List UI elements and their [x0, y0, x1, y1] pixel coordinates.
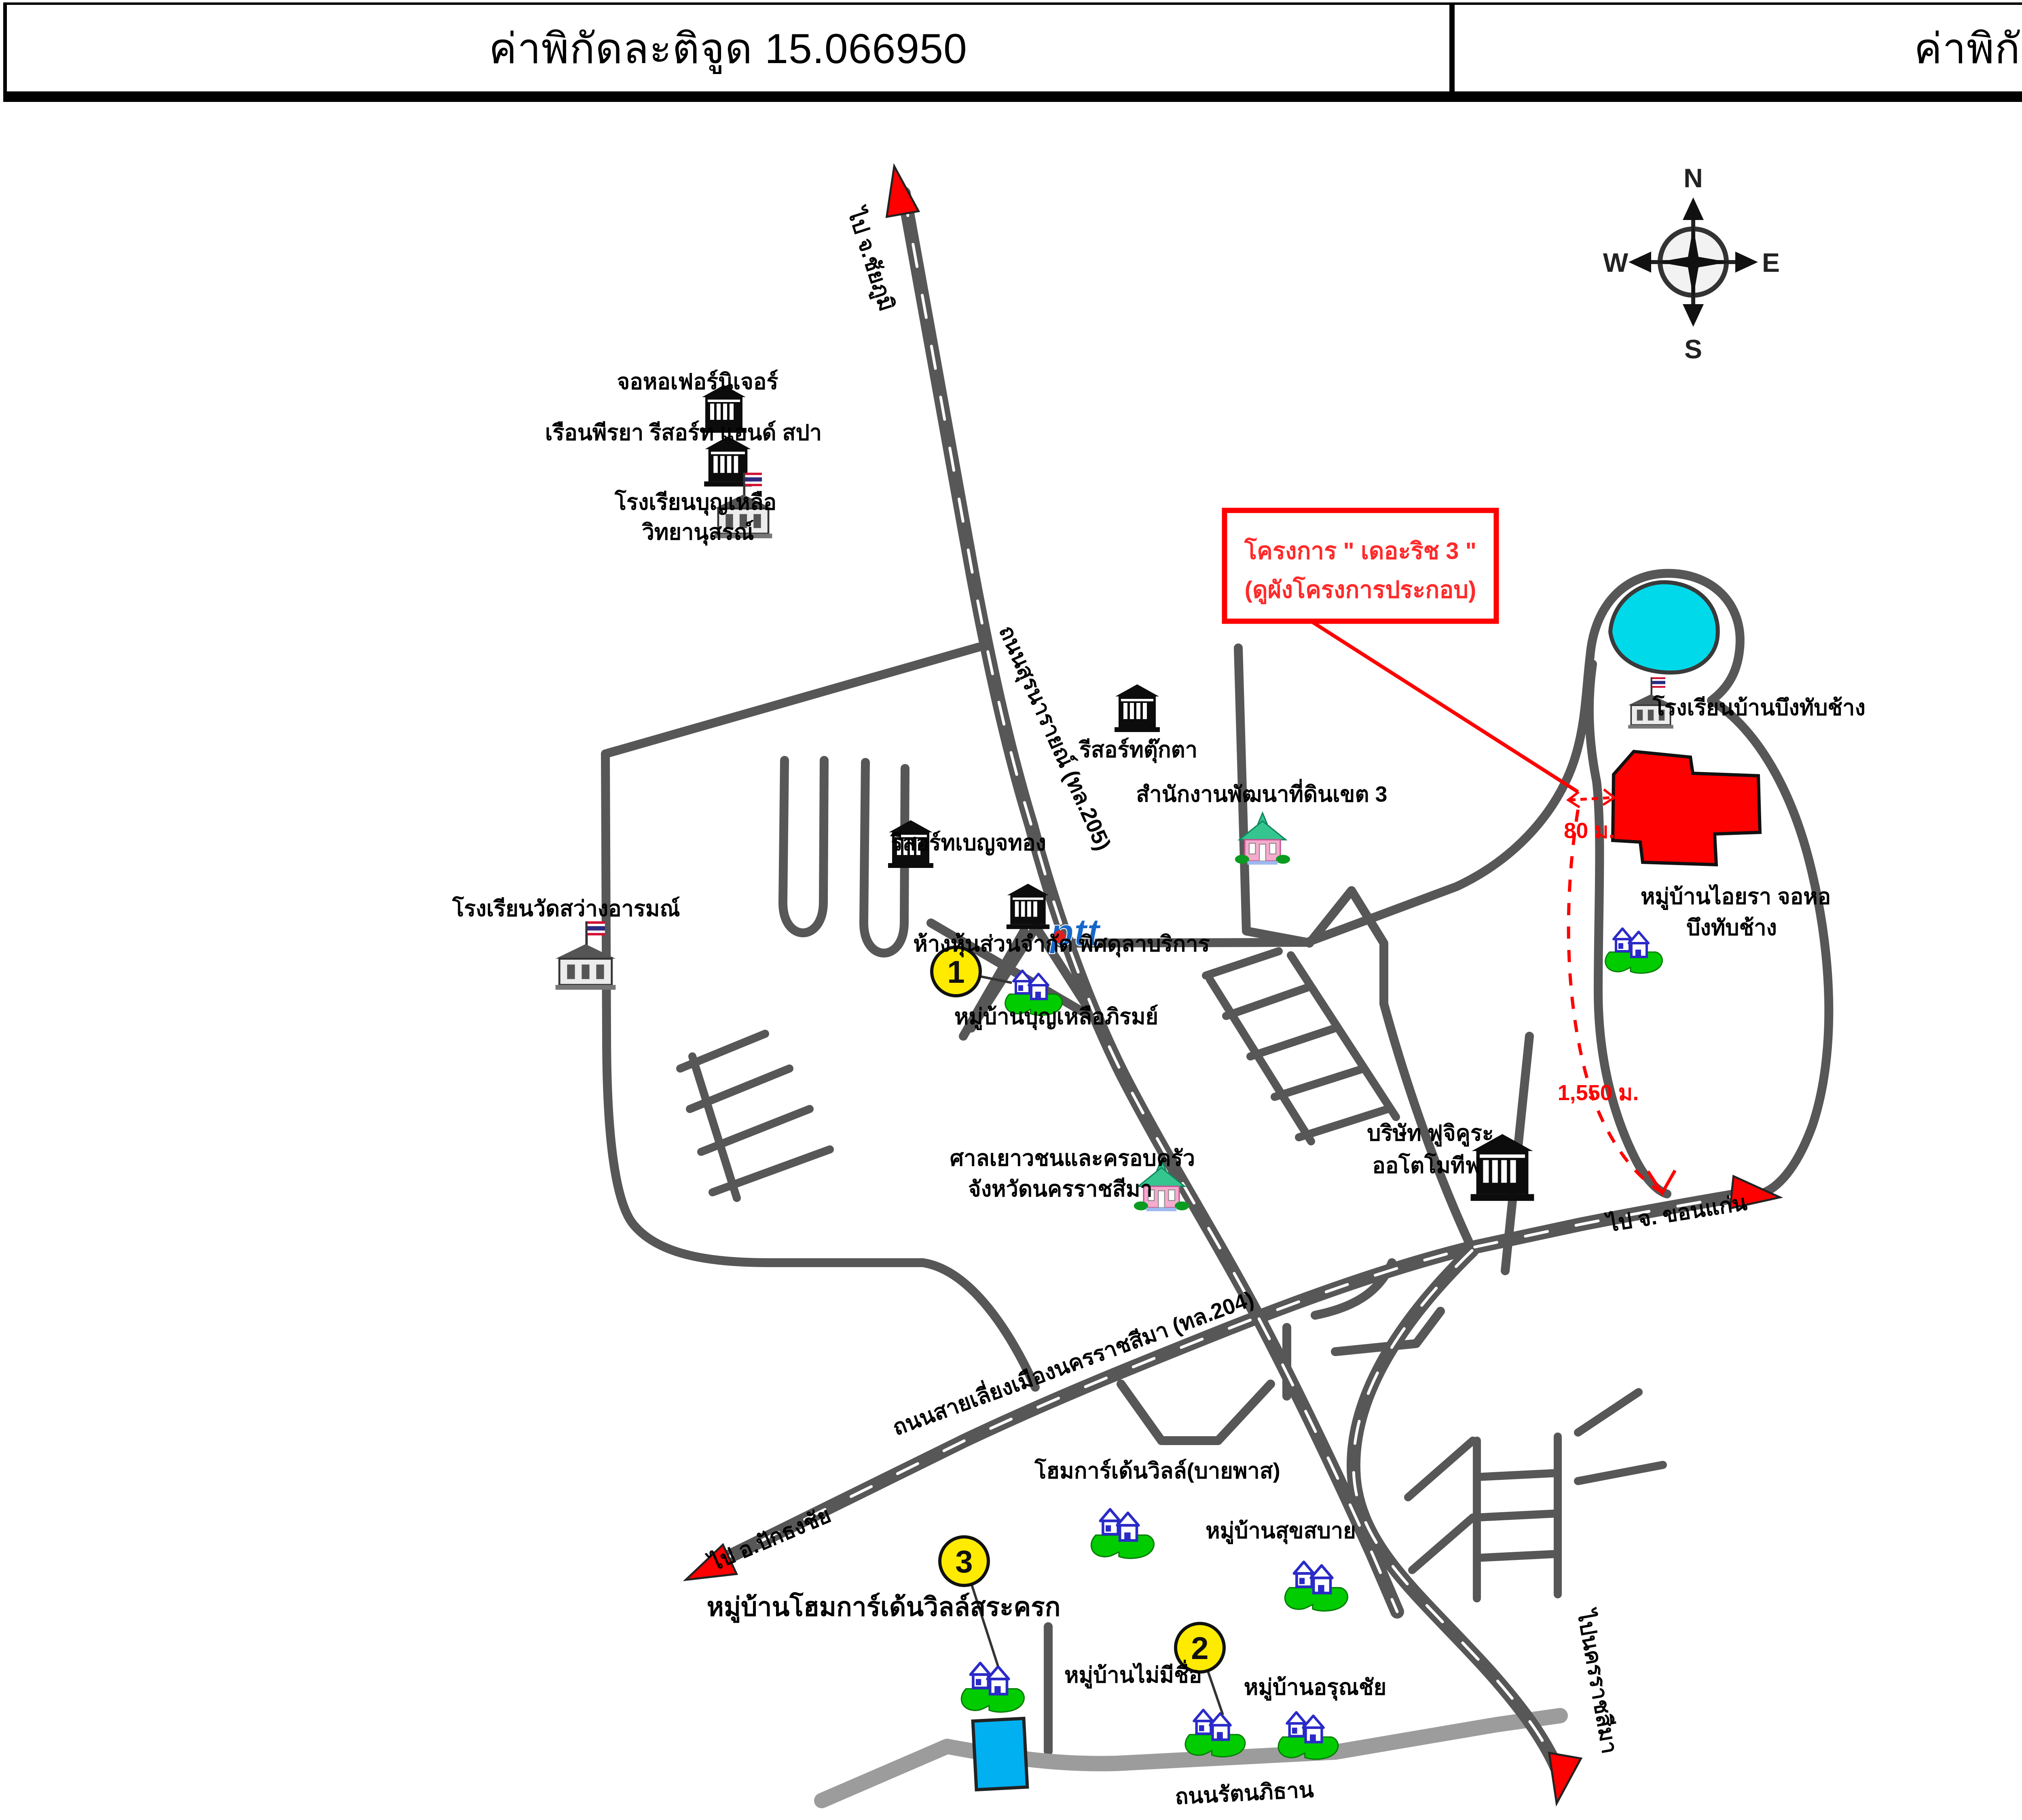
label-home-garden-ville-bypass: โฮมการ์เด้นวิลล์(บายพาส)	[1034, 1458, 1280, 1483]
label-juvenile-court-1: ศาลเยาวชนและครอบครัว	[950, 1146, 1195, 1170]
pond	[973, 1718, 1028, 1790]
resort-tukta-icon	[1115, 684, 1160, 732]
label-to-pakthongchai: ไป อ.ปักธงชัย	[704, 1502, 834, 1576]
label-boonluea-school-1: โรงเรียนบุญเหลือ	[614, 489, 776, 516]
arrow-to-chaiyaphum	[878, 163, 919, 217]
numbered-marker-label: 3	[955, 1544, 973, 1579]
label-resort-benjathong: รีสอร์ทเบญจทอง	[890, 830, 1046, 855]
label-rattanaphithan-road: ถนนรัตนภิธาน	[1174, 1778, 1314, 1809]
label-no-name-village: หมู่บ้านไม่มีชื่อ	[1064, 1659, 1202, 1689]
label-aiyara-village-1: หมู่บ้านไอยรา จอหอ	[1641, 884, 1831, 910]
project-site-polygon	[1613, 751, 1760, 865]
label-distance-80m: 80 ม.	[1564, 819, 1615, 843]
label-to-nakhonratchasima: ไปนครราชสีมา	[1572, 1606, 1622, 1756]
label-project-line1: โครงการ " เดอะริช 3 "	[1244, 537, 1476, 564]
location-map: ptt	[0, 0, 2022, 1820]
label-aiyara-village-2: บึงทับช้าง	[1686, 916, 1777, 940]
compass-rose: N S E W	[1603, 163, 1780, 364]
label-juvenile-court-2: จังหวัดนครราชสีมา	[968, 1177, 1153, 1201]
label-boonluea-school-2: วิทยานุสรณ์	[642, 520, 754, 546]
route-dotted-line	[1569, 810, 1661, 1191]
label-to-chaiyaphum: ไป จ.ชัยภูมิ	[842, 203, 900, 315]
label-arunchai-village: หมู่บ้านอรุณชัย	[1244, 1675, 1387, 1701]
label-wat-sawang-arom-school: โรงเรียนวัดสว่างอารมณ์	[452, 896, 680, 921]
compass-w: W	[1603, 248, 1629, 277]
label-land-dev-office: สำนักงานพัฒนาที่ดินเขต 3	[1136, 779, 1387, 806]
label-fujikura-2: ออโตโมทีฟ	[1372, 1153, 1480, 1178]
label-project-line2: (ดูผังโครงการประกอบ)	[1245, 576, 1476, 604]
project-callout-box	[1225, 510, 1496, 621]
project-callout-leader	[1311, 621, 1578, 792]
latitude-cell: ค่าพิกัดละติจูด 15.066950	[7, 5, 1449, 91]
suksabai-icon	[1285, 1562, 1347, 1611]
label-ruen-peeraya-resort-spa: เรือนพีรยา รีสอร์ท แอนด์ สปา	[545, 420, 822, 445]
label-johor-furniture: จอหอเฟอร์นิเจอร์	[617, 369, 778, 394]
label-banbuengthapchang-school: โรงเรียนบ้านบึงทับช้าง	[1652, 695, 1865, 720]
distance-80m-arrow	[1569, 798, 1614, 800]
label-resort-tukta: รีสอร์ทตุ๊กตา	[1079, 737, 1197, 764]
lake-bueng-thap-chang	[1610, 582, 1718, 672]
label-suksabai-village: หมู่บ้านสุขสบาย	[1206, 1519, 1356, 1545]
label-home-garden-ville-sakrok: หมู่บ้านโฮมการ์เด้นวิลล์สระครก	[707, 1591, 1061, 1623]
numbered-marker-label: 2	[1191, 1630, 1208, 1666]
label-to-khonkaen: ไป จ. ขอนแก่น	[1603, 1189, 1749, 1237]
label-boonluea-pirom-village: หมู่บ้านบุญเหลือภิรมย์	[954, 1004, 1158, 1031]
longitude-cell: ค่าพิกัดลองจิจูด 102.142692	[1449, 5, 2022, 91]
compass-n: N	[1684, 163, 1703, 193]
compass-e: E	[1762, 248, 1780, 277]
label-bypass-road: ถนนสายเลี่ยงเมืองนครราชสีมา (ทล.204)	[888, 1283, 1257, 1440]
no-name-village-icon	[1185, 1710, 1245, 1757]
label-distance-1550m: 1,550 ม.	[1558, 1081, 1639, 1105]
arunchai-icon	[1278, 1712, 1338, 1759]
aiyara-village-icon	[1605, 929, 1662, 973]
label-fujikura-1: บริษัท ฟูจิคูระ	[1367, 1121, 1493, 1147]
coordinate-header-table: ค่าพิกัดละติจูด 15.066950 ค่าพิกัดลองจิจ…	[3, 2, 2022, 102]
home-garden-bypass-icon	[1091, 1509, 1154, 1558]
compass-s: S	[1684, 334, 1702, 364]
numbered-marker-label: 1	[947, 954, 964, 990]
sakrok-icon	[961, 1663, 1024, 1712]
label-partnership-service: ห้างหุ้นส่วนจำกัด พิศดุลาบริการ	[913, 932, 1210, 958]
